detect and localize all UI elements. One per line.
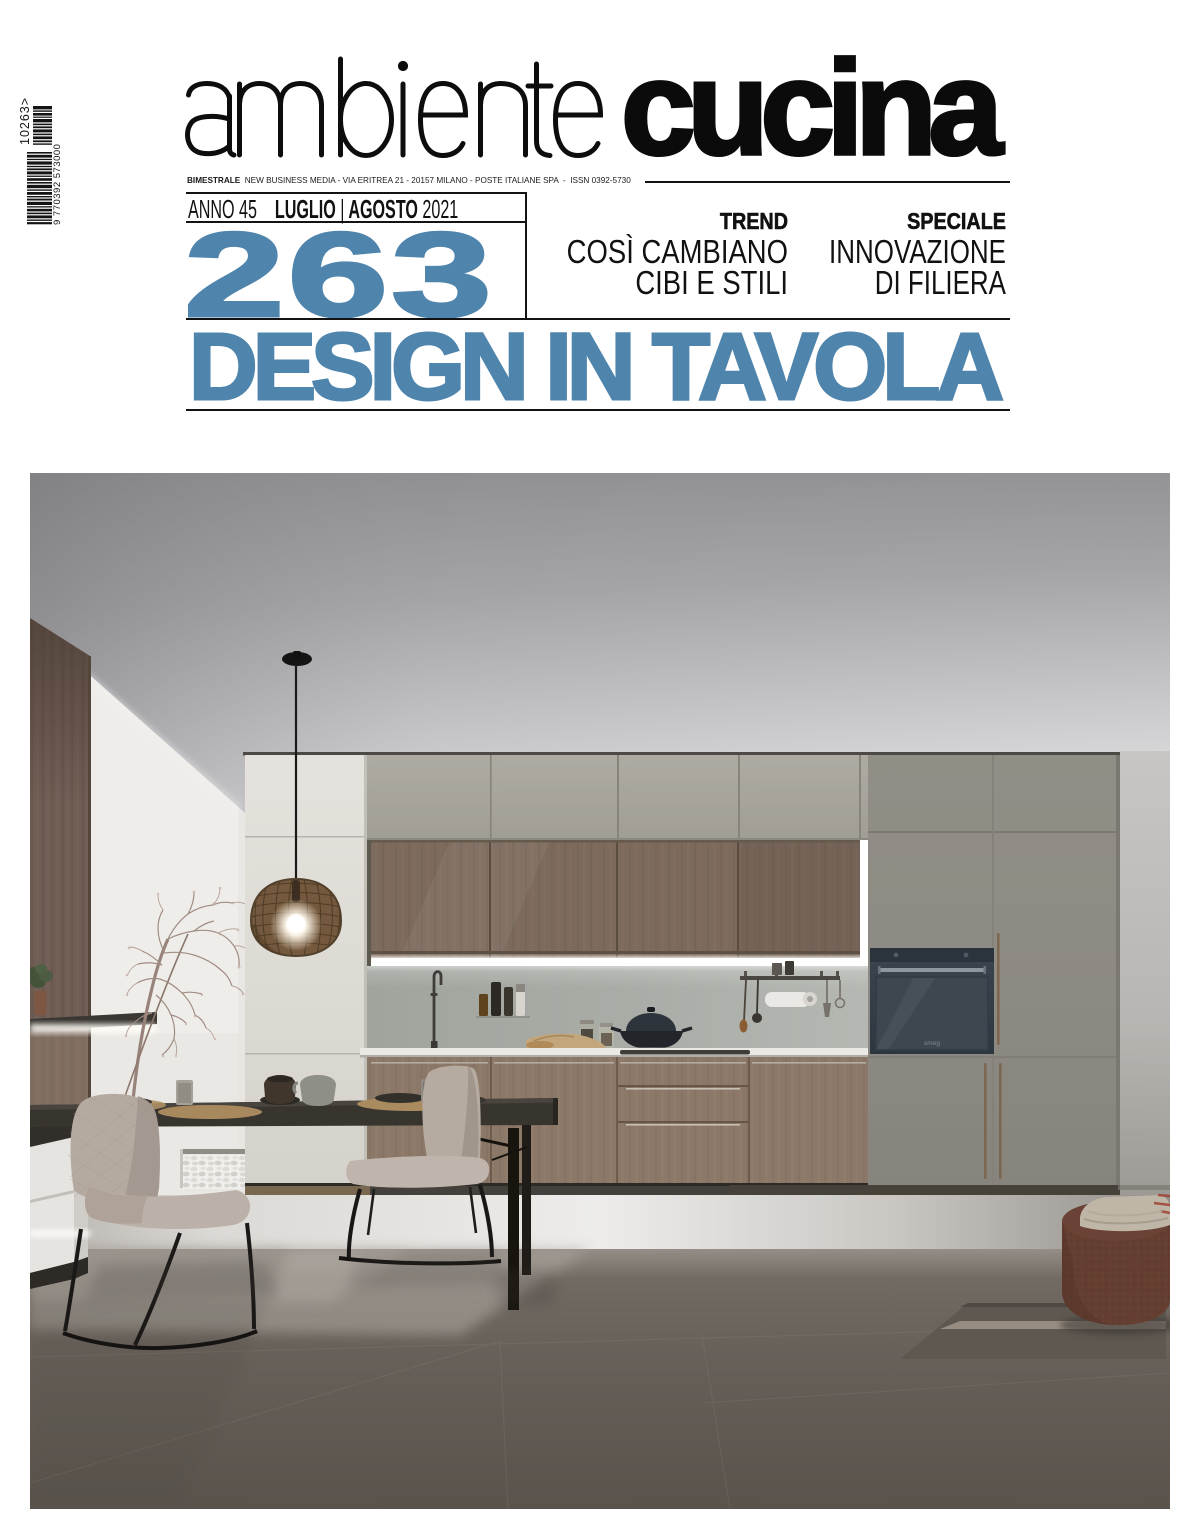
svg-text:smeg: smeg (924, 1040, 940, 1047)
svg-text:9 770392 573000: 9 770392 573000 (52, 144, 63, 225)
svg-text:10263>: 10263> (18, 97, 32, 145)
